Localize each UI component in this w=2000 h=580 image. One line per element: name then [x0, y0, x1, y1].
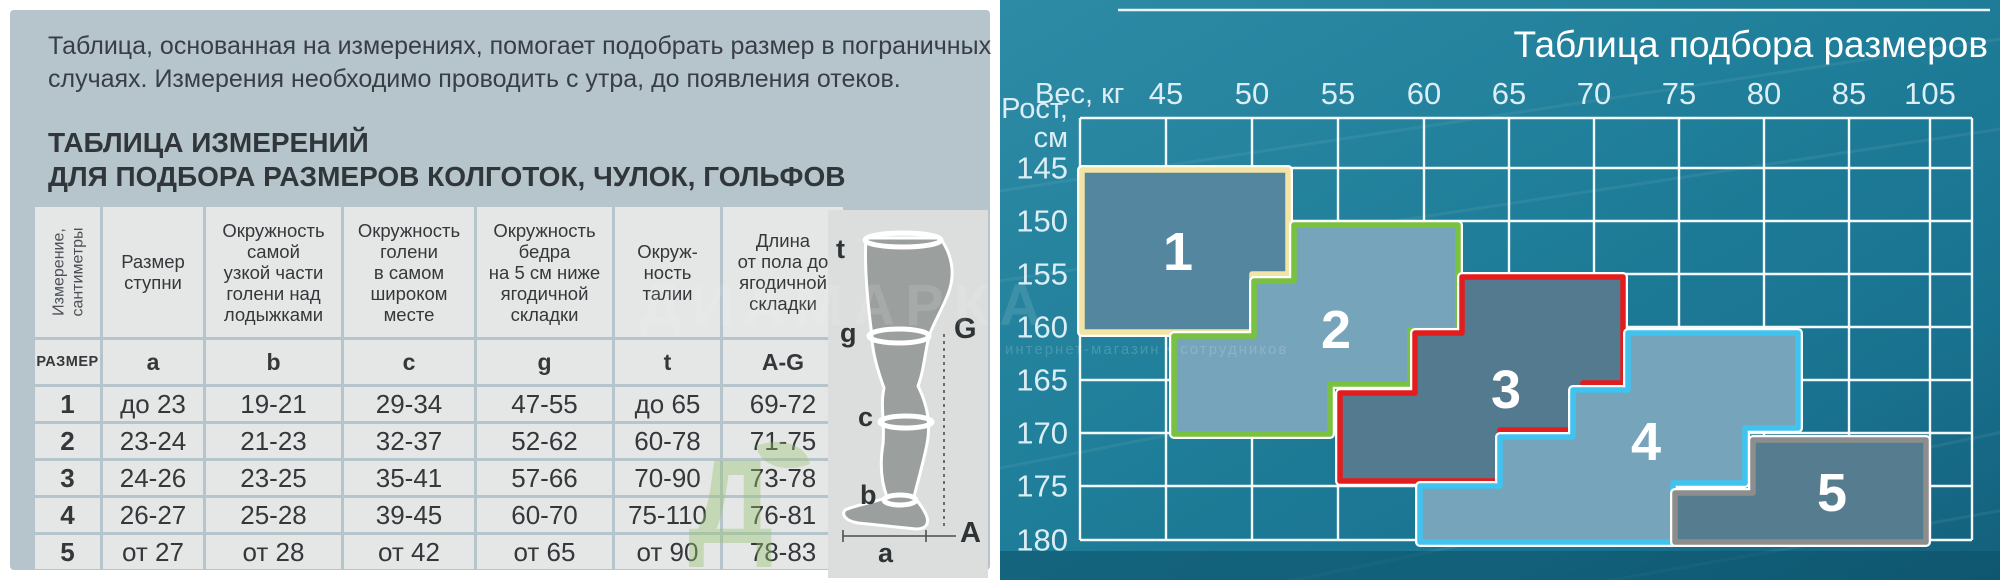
table-cell-r4c0: 4 [35, 498, 100, 532]
table-subheader-cell-6: A-G [723, 340, 843, 384]
table-cell-r4c1: 26-27 [103, 498, 203, 532]
table-subheader-cell-3: c [344, 340, 474, 384]
x-tick-70: 70 [1577, 76, 1611, 111]
table-subheader-cell-1: a [103, 340, 203, 384]
measurement-table: Измерение, сантиметрыРазмер ступниОкружн… [35, 207, 843, 569]
x-tick-45: 45 [1149, 76, 1183, 111]
table-cell-r1c6: 69-72 [723, 387, 843, 421]
table-cell-r5c0: 5 [35, 535, 100, 569]
y-tick-145: 145 [1016, 151, 1068, 186]
table-corner-header: Измерение, сантиметры [35, 207, 100, 337]
table-subheader-cell-0: РАЗМЕР [35, 340, 100, 384]
height-axis-label-line2: см [1034, 122, 1068, 154]
leg-diagram-icon: tgcbaGA [828, 210, 988, 578]
size-chart-svg: 12345 4550556065707580851051451501551601… [1000, 0, 2000, 580]
size-region-label-3: 3 [1491, 360, 1521, 420]
table-subheader-cell-5: t [615, 340, 720, 384]
table-cell-r3c0: 3 [35, 461, 100, 495]
height-axis-label-line1: Рост, [1001, 93, 1068, 125]
table-cell-r2c0: 2 [35, 424, 100, 458]
intro-text: Таблица, основанная на измерениях, помог… [48, 30, 998, 96]
table-cell-r3c2: 23-25 [206, 461, 341, 495]
table-cell-r2c4: 52-62 [477, 424, 612, 458]
size-region-label-2: 2 [1321, 300, 1351, 360]
table-header-cell-1: Размер ступни [103, 207, 203, 337]
y-tick-170: 170 [1016, 416, 1068, 451]
table-cell-r3c3: 35-41 [344, 461, 474, 495]
table-header-cell-4: Окружность бедра на 5 см ниже ягодичной … [477, 207, 612, 337]
table-cell-r2c6: 71-75 [723, 424, 843, 458]
table-cell-r1c5: до 65 [615, 387, 720, 421]
size-chart-panel: 12345 4550556065707580851051451501551601… [1000, 0, 2000, 580]
size-region-label-4: 4 [1631, 412, 1661, 472]
table-cell-r5c1: от 27 [103, 535, 203, 569]
x-tick-60: 60 [1407, 76, 1441, 111]
table-cell-r2c5: 60-78 [615, 424, 720, 458]
table-header-cell-3: Окружность голени в самом широком месте [344, 207, 474, 337]
table-cell-r3c6: 73-78 [723, 461, 843, 495]
table-cell-r3c1: 24-26 [103, 461, 203, 495]
leg-label-G: G [954, 313, 977, 345]
y-tick-150: 150 [1016, 204, 1068, 239]
table-subheader-cell-2: b [206, 340, 341, 384]
size-region-label-1: 1 [1163, 222, 1193, 282]
table-cell-r2c3: 32-37 [344, 424, 474, 458]
chart-title: Таблица подбора размеров [1514, 24, 1988, 65]
bottom-dark-band [1000, 551, 2000, 580]
y-tick-175: 175 [1016, 469, 1068, 504]
size-region-label-5: 5 [1817, 463, 1847, 523]
table-cell-r1c2: 19-21 [206, 387, 341, 421]
x-tick-75: 75 [1662, 76, 1696, 111]
table-cell-r2c2: 21-23 [206, 424, 341, 458]
table-heading: ТАБЛИЦА ИЗМЕРЕНИЙ ДЛЯ ПОДБОРА РАЗМЕРОВ К… [48, 126, 998, 194]
table-cell-r5c3: от 42 [344, 535, 474, 569]
table-cell-r4c2: 25-28 [206, 498, 341, 532]
leg-diagram-panel: tgcbaGA [828, 210, 988, 578]
table-cell-r1c3: 29-34 [344, 387, 474, 421]
leg-label-t: t [836, 234, 845, 264]
table-header-cell-5: Окруж- ность талии [615, 207, 720, 337]
x-tick-65: 65 [1492, 76, 1526, 111]
table-cell-r5c4: от 65 [477, 535, 612, 569]
x-tick-105: 105 [1904, 76, 1956, 111]
table-cell-r2c1: 23-24 [103, 424, 203, 458]
leg-label-b: b [860, 480, 877, 510]
leg-label-g: g [840, 318, 857, 348]
table-cell-r1c4: 47-55 [477, 387, 612, 421]
table-cell-r3c4: 57-66 [477, 461, 612, 495]
table-cell-r4c6: 76-81 [723, 498, 843, 532]
x-tick-80: 80 [1747, 76, 1781, 111]
left-panel-frame: Таблица, основанная на измерениях, помог… [0, 0, 1000, 580]
x-tick-50: 50 [1235, 76, 1269, 111]
table-cell-r5c2: от 28 [206, 535, 341, 569]
y-tick-160: 160 [1016, 310, 1068, 345]
table-cell-r4c4: 60-70 [477, 498, 612, 532]
table-cell-r1c1: до 23 [103, 387, 203, 421]
table-header-cell-6: Длина от пола до ягодичной складки [723, 207, 843, 337]
y-tick-155: 155 [1016, 257, 1068, 292]
leg-label-c: c [858, 402, 873, 432]
table-cell-r5c5: от 90 [615, 535, 720, 569]
table-cell-r4c3: 39-45 [344, 498, 474, 532]
left-panel: Таблица, основанная на измерениях, помог… [10, 10, 990, 570]
y-tick-180: 180 [1016, 523, 1068, 558]
x-tick-55: 55 [1321, 76, 1355, 111]
x-tick-85: 85 [1832, 76, 1866, 111]
table-cell-r1c0: 1 [35, 387, 100, 421]
infographic-root: Таблица, основанная на измерениях, помог… [0, 0, 2000, 580]
table-header-cell-2: Окружность самой узкой части голени над … [206, 207, 341, 337]
table-cell-r3c5: 70-90 [615, 461, 720, 495]
table-cell-r4c5: 75-110 [615, 498, 720, 532]
leg-label-A: A [960, 517, 981, 549]
y-tick-165: 165 [1016, 363, 1068, 398]
leg-label-a: a [878, 538, 894, 568]
table-subheader-cell-4: g [477, 340, 612, 384]
corner-header-rotated-text: Измерение, сантиметры [37, 209, 98, 335]
table-cell-r5c6: 78-83 [723, 535, 843, 569]
